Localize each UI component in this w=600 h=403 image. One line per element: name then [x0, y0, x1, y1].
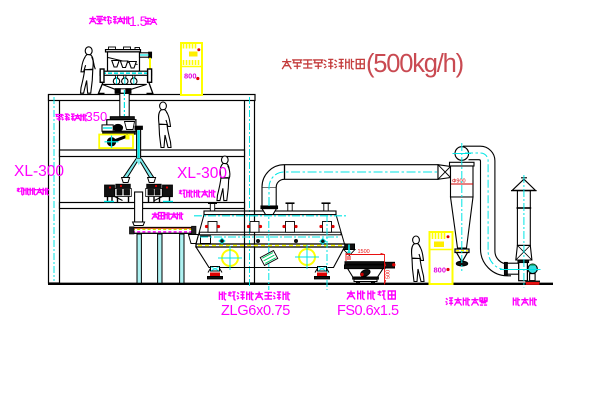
svg-text:350: 350: [86, 109, 108, 124]
svg-text:(500kg/h): (500kg/h): [366, 50, 463, 78]
svg-text:FS0.6x1.5: FS0.6x1.5: [337, 303, 399, 319]
svg-text:800: 800: [434, 266, 447, 275]
svg-text:1500: 1500: [358, 249, 370, 255]
svg-text:Φ900: Φ900: [452, 179, 466, 185]
svg-text:ZLG6x0.75: ZLG6x0.75: [221, 303, 290, 319]
svg-text:800: 800: [184, 72, 197, 81]
svg-text:XL-300: XL-300: [177, 165, 227, 182]
svg-text:500: 500: [386, 270, 392, 279]
svg-text:XL-300: XL-300: [14, 163, 64, 180]
